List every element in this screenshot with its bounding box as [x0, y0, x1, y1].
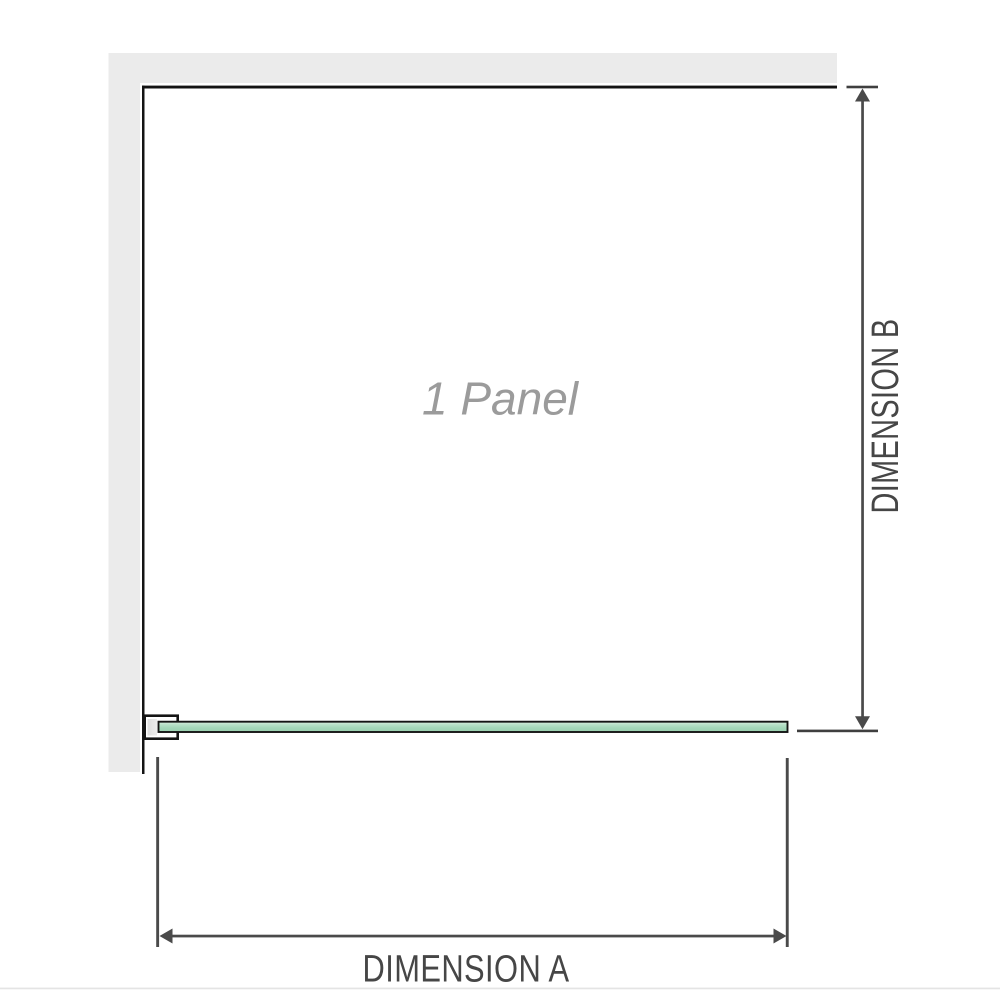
- svg-text:DIMENSION A: DIMENSION A: [363, 949, 570, 991]
- svg-text:1 Panel: 1 Panel: [422, 373, 580, 425]
- svg-text:DIMENSION B: DIMENSION B: [864, 318, 907, 513]
